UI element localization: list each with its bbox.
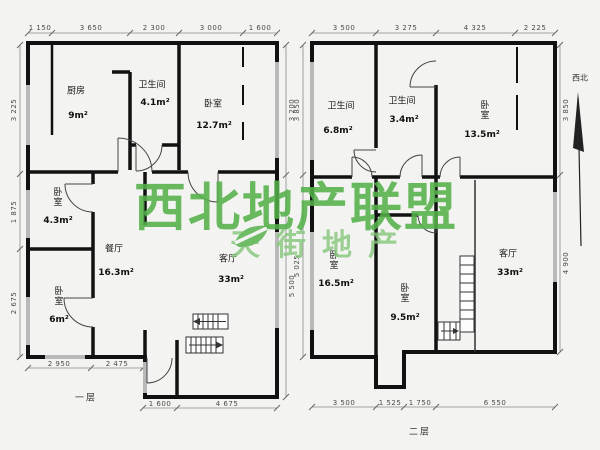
room-area: 9.5m² xyxy=(390,313,419,323)
dim-label: 3 500 xyxy=(333,24,356,32)
dim-label: 2 950 xyxy=(48,360,71,368)
dim-label: 3 500 xyxy=(333,399,356,407)
dim-label: 1 750 xyxy=(409,399,432,407)
floorplan-canvas: 1 150 3 650 2 300 3 000 1 600 3 225 1 87… xyxy=(0,0,600,450)
room-area: 33m² xyxy=(497,268,523,278)
room-name: 卫生间 xyxy=(138,78,165,91)
room-area: 33m² xyxy=(218,275,244,285)
room-name: 卧室 xyxy=(478,100,491,120)
dim-label: 4 900 xyxy=(562,252,570,275)
dim-label: 3 650 xyxy=(80,24,103,32)
room-area: 4.3m² xyxy=(43,216,72,226)
room-name: 卧室 xyxy=(51,187,64,207)
compass-label: 西北 xyxy=(572,73,588,84)
room-name: 客厅 xyxy=(499,247,517,260)
dim-label: 2 225 xyxy=(524,24,547,32)
leaf-icon xyxy=(230,220,272,252)
dim-label: 2 300 xyxy=(143,24,166,32)
dim-label: 4 675 xyxy=(216,400,239,408)
room-area: 3.4m² xyxy=(389,115,418,125)
room-area: 12.7m² xyxy=(196,121,232,131)
room-area: 16.3m² xyxy=(98,268,134,278)
room-name: 卧室 xyxy=(52,286,65,306)
dim-label: 3 850 xyxy=(562,99,570,122)
room-area: 13.5m² xyxy=(464,130,500,140)
dim-label: 4 325 xyxy=(464,24,487,32)
watermark-subtitle-row: 天街地产 xyxy=(230,220,414,264)
room-name: 卧室 xyxy=(398,283,411,303)
dim-label: 2 475 xyxy=(106,360,129,368)
dim-label: 1 150 xyxy=(29,24,52,32)
room-name: 餐厅 xyxy=(105,242,123,255)
dim-label: 1 875 xyxy=(10,201,18,224)
north-arrow-icon xyxy=(573,92,584,246)
room-area: 6m² xyxy=(49,315,69,325)
room-name: 卧室 xyxy=(204,97,222,110)
dim-label: 1 600 xyxy=(249,24,272,32)
floor2-stairs xyxy=(438,256,474,340)
dim-label: 1 525 xyxy=(379,399,402,407)
dim-label: 3 850 xyxy=(293,99,301,122)
dim-label: 3 000 xyxy=(200,24,223,32)
dim-label: 1 600 xyxy=(149,400,172,408)
floor1-title: 一层 xyxy=(75,391,97,404)
floor1-stairs xyxy=(186,314,228,353)
room-name: 卫生间 xyxy=(388,94,415,107)
dim-label: 2 675 xyxy=(10,292,18,315)
dim-label: 3 275 xyxy=(395,24,418,32)
room-name: 卫生间 xyxy=(327,99,354,112)
room-area: 16.5m² xyxy=(318,279,354,289)
room-area: 6.8m² xyxy=(323,126,352,136)
floor2-title: 二层 xyxy=(409,425,431,438)
room-name: 厨房 xyxy=(67,84,85,97)
dim-label: 3 225 xyxy=(10,99,18,122)
room-area: 4.1m² xyxy=(140,98,169,108)
room-area: 9m² xyxy=(68,111,88,121)
dim-label: 6 550 xyxy=(484,399,507,407)
dim-label: 5 500 xyxy=(288,275,296,298)
